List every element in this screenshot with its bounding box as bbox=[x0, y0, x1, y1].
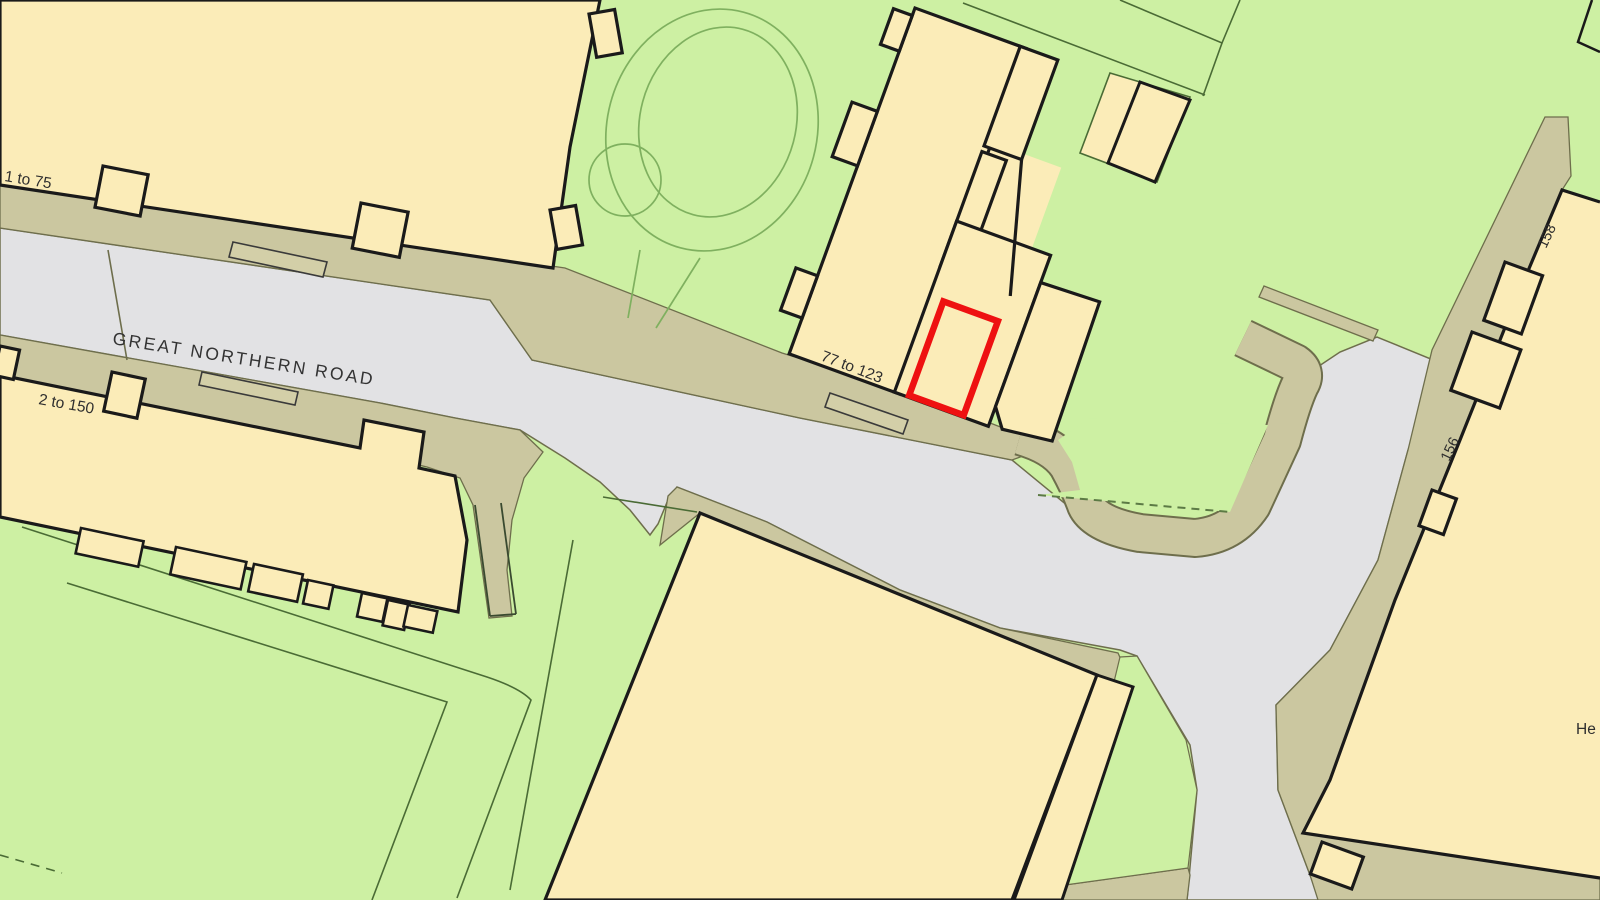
porch-step bbox=[303, 580, 333, 609]
partial-edge-label: He bbox=[1576, 721, 1596, 738]
porch bbox=[352, 203, 408, 257]
porch bbox=[589, 9, 622, 57]
site-plan-map: GREAT NORTHERN ROAD 1 to 75 2 to 150 77 … bbox=[0, 0, 1600, 900]
porch bbox=[95, 166, 148, 216]
porch-step bbox=[357, 593, 387, 622]
porch bbox=[550, 205, 583, 249]
porch bbox=[104, 372, 146, 418]
porch-step bbox=[403, 605, 437, 633]
map-canvas[interactable]: GREAT NORTHERN ROAD 1 to 75 2 to 150 77 … bbox=[0, 0, 1600, 900]
